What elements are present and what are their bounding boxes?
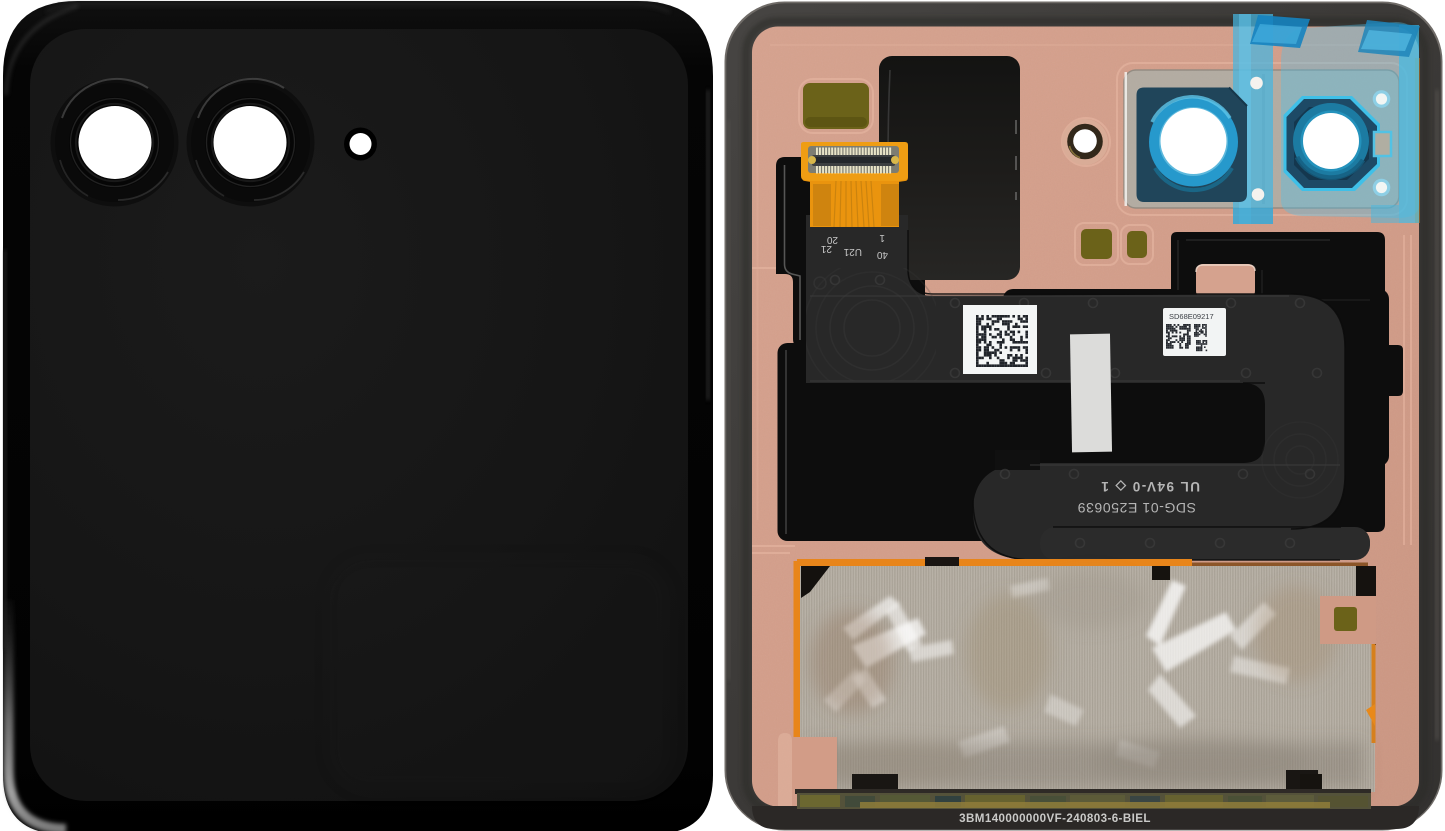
svg-text:SD68E09217: SD68E09217 xyxy=(1169,312,1214,321)
svg-text:U21: U21 xyxy=(843,246,862,257)
svg-text:20: 20 xyxy=(826,234,838,245)
svg-text:SDG-01 E250639: SDG-01 E250639 xyxy=(1077,500,1196,516)
svg-text:UL 94V-0 ◇ 1: UL 94V-0 ◇ 1 xyxy=(1100,479,1200,494)
svg-text:3BM140000000VF-240803-6-BIEL: 3BM140000000VF-240803-6-BIEL xyxy=(959,812,1151,825)
svg-text:40: 40 xyxy=(876,249,888,260)
svg-text:1: 1 xyxy=(879,232,885,243)
